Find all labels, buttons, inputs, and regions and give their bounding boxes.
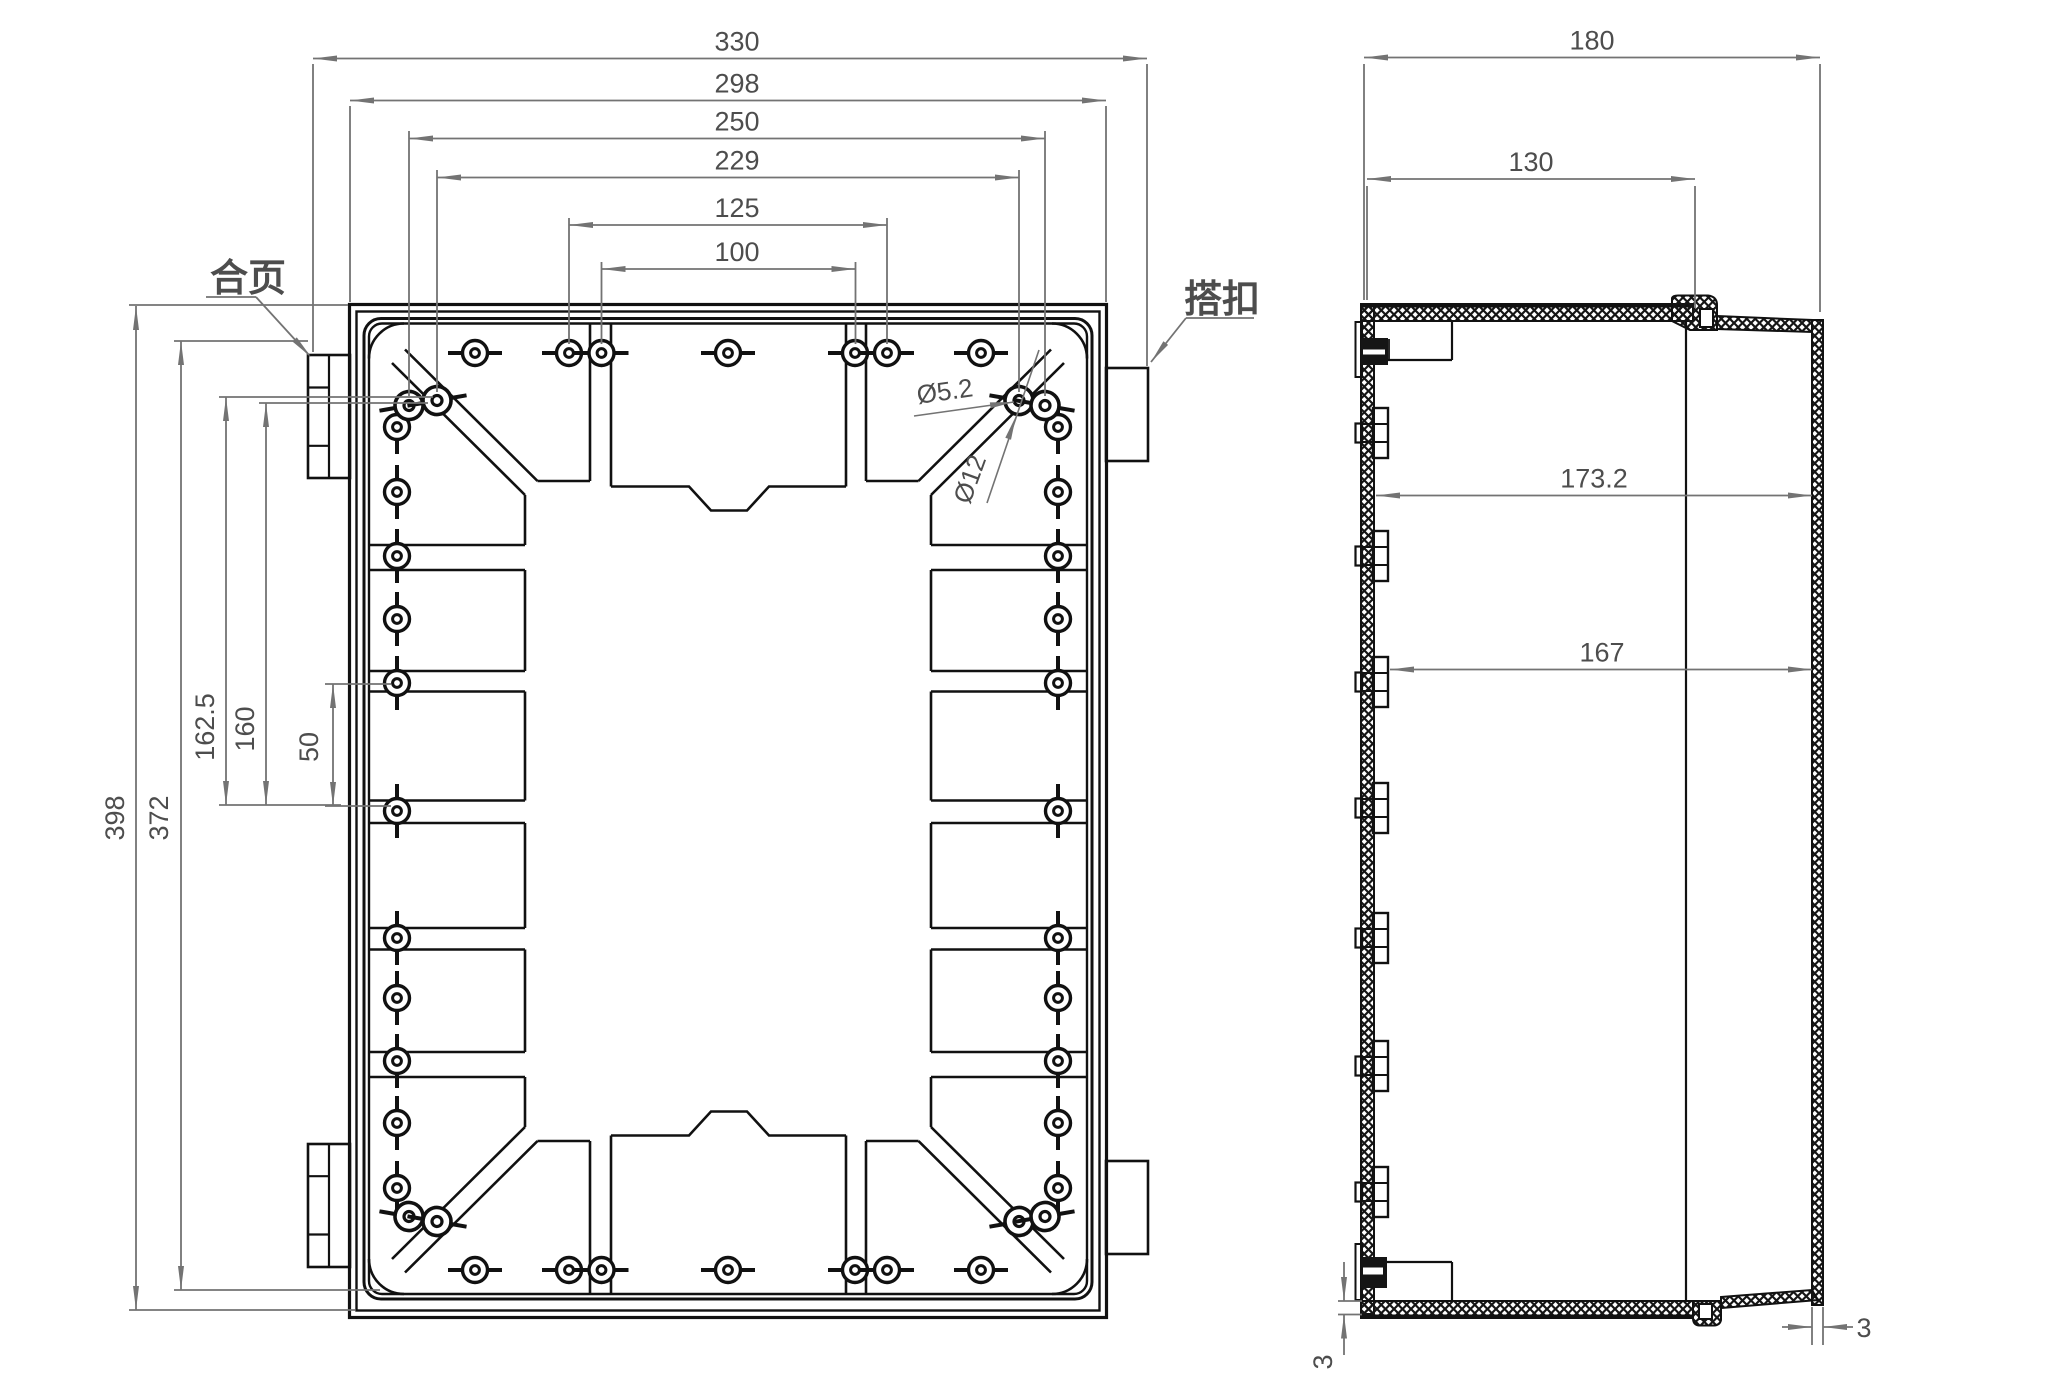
svg-text:125: 125 — [714, 193, 759, 223]
svg-text:合页: 合页 — [210, 258, 286, 300]
svg-text:229: 229 — [714, 146, 759, 176]
svg-text:330: 330 — [714, 27, 759, 57]
svg-text:130: 130 — [1508, 147, 1553, 177]
svg-text:50: 50 — [294, 732, 324, 762]
svg-text:3: 3 — [1308, 1354, 1338, 1369]
svg-text:3: 3 — [1856, 1313, 1871, 1343]
svg-text:298: 298 — [714, 69, 759, 99]
svg-text:372: 372 — [144, 795, 174, 840]
svg-text:162.5: 162.5 — [190, 693, 220, 761]
svg-text:160: 160 — [230, 706, 260, 751]
svg-text:167: 167 — [1579, 638, 1624, 668]
svg-text:180: 180 — [1569, 26, 1614, 56]
svg-text:搭扣: 搭扣 — [1184, 279, 1260, 321]
svg-text:173.2: 173.2 — [1560, 464, 1628, 494]
svg-text:250: 250 — [714, 107, 759, 137]
svg-text:100: 100 — [714, 237, 759, 267]
svg-text:398: 398 — [100, 795, 130, 840]
